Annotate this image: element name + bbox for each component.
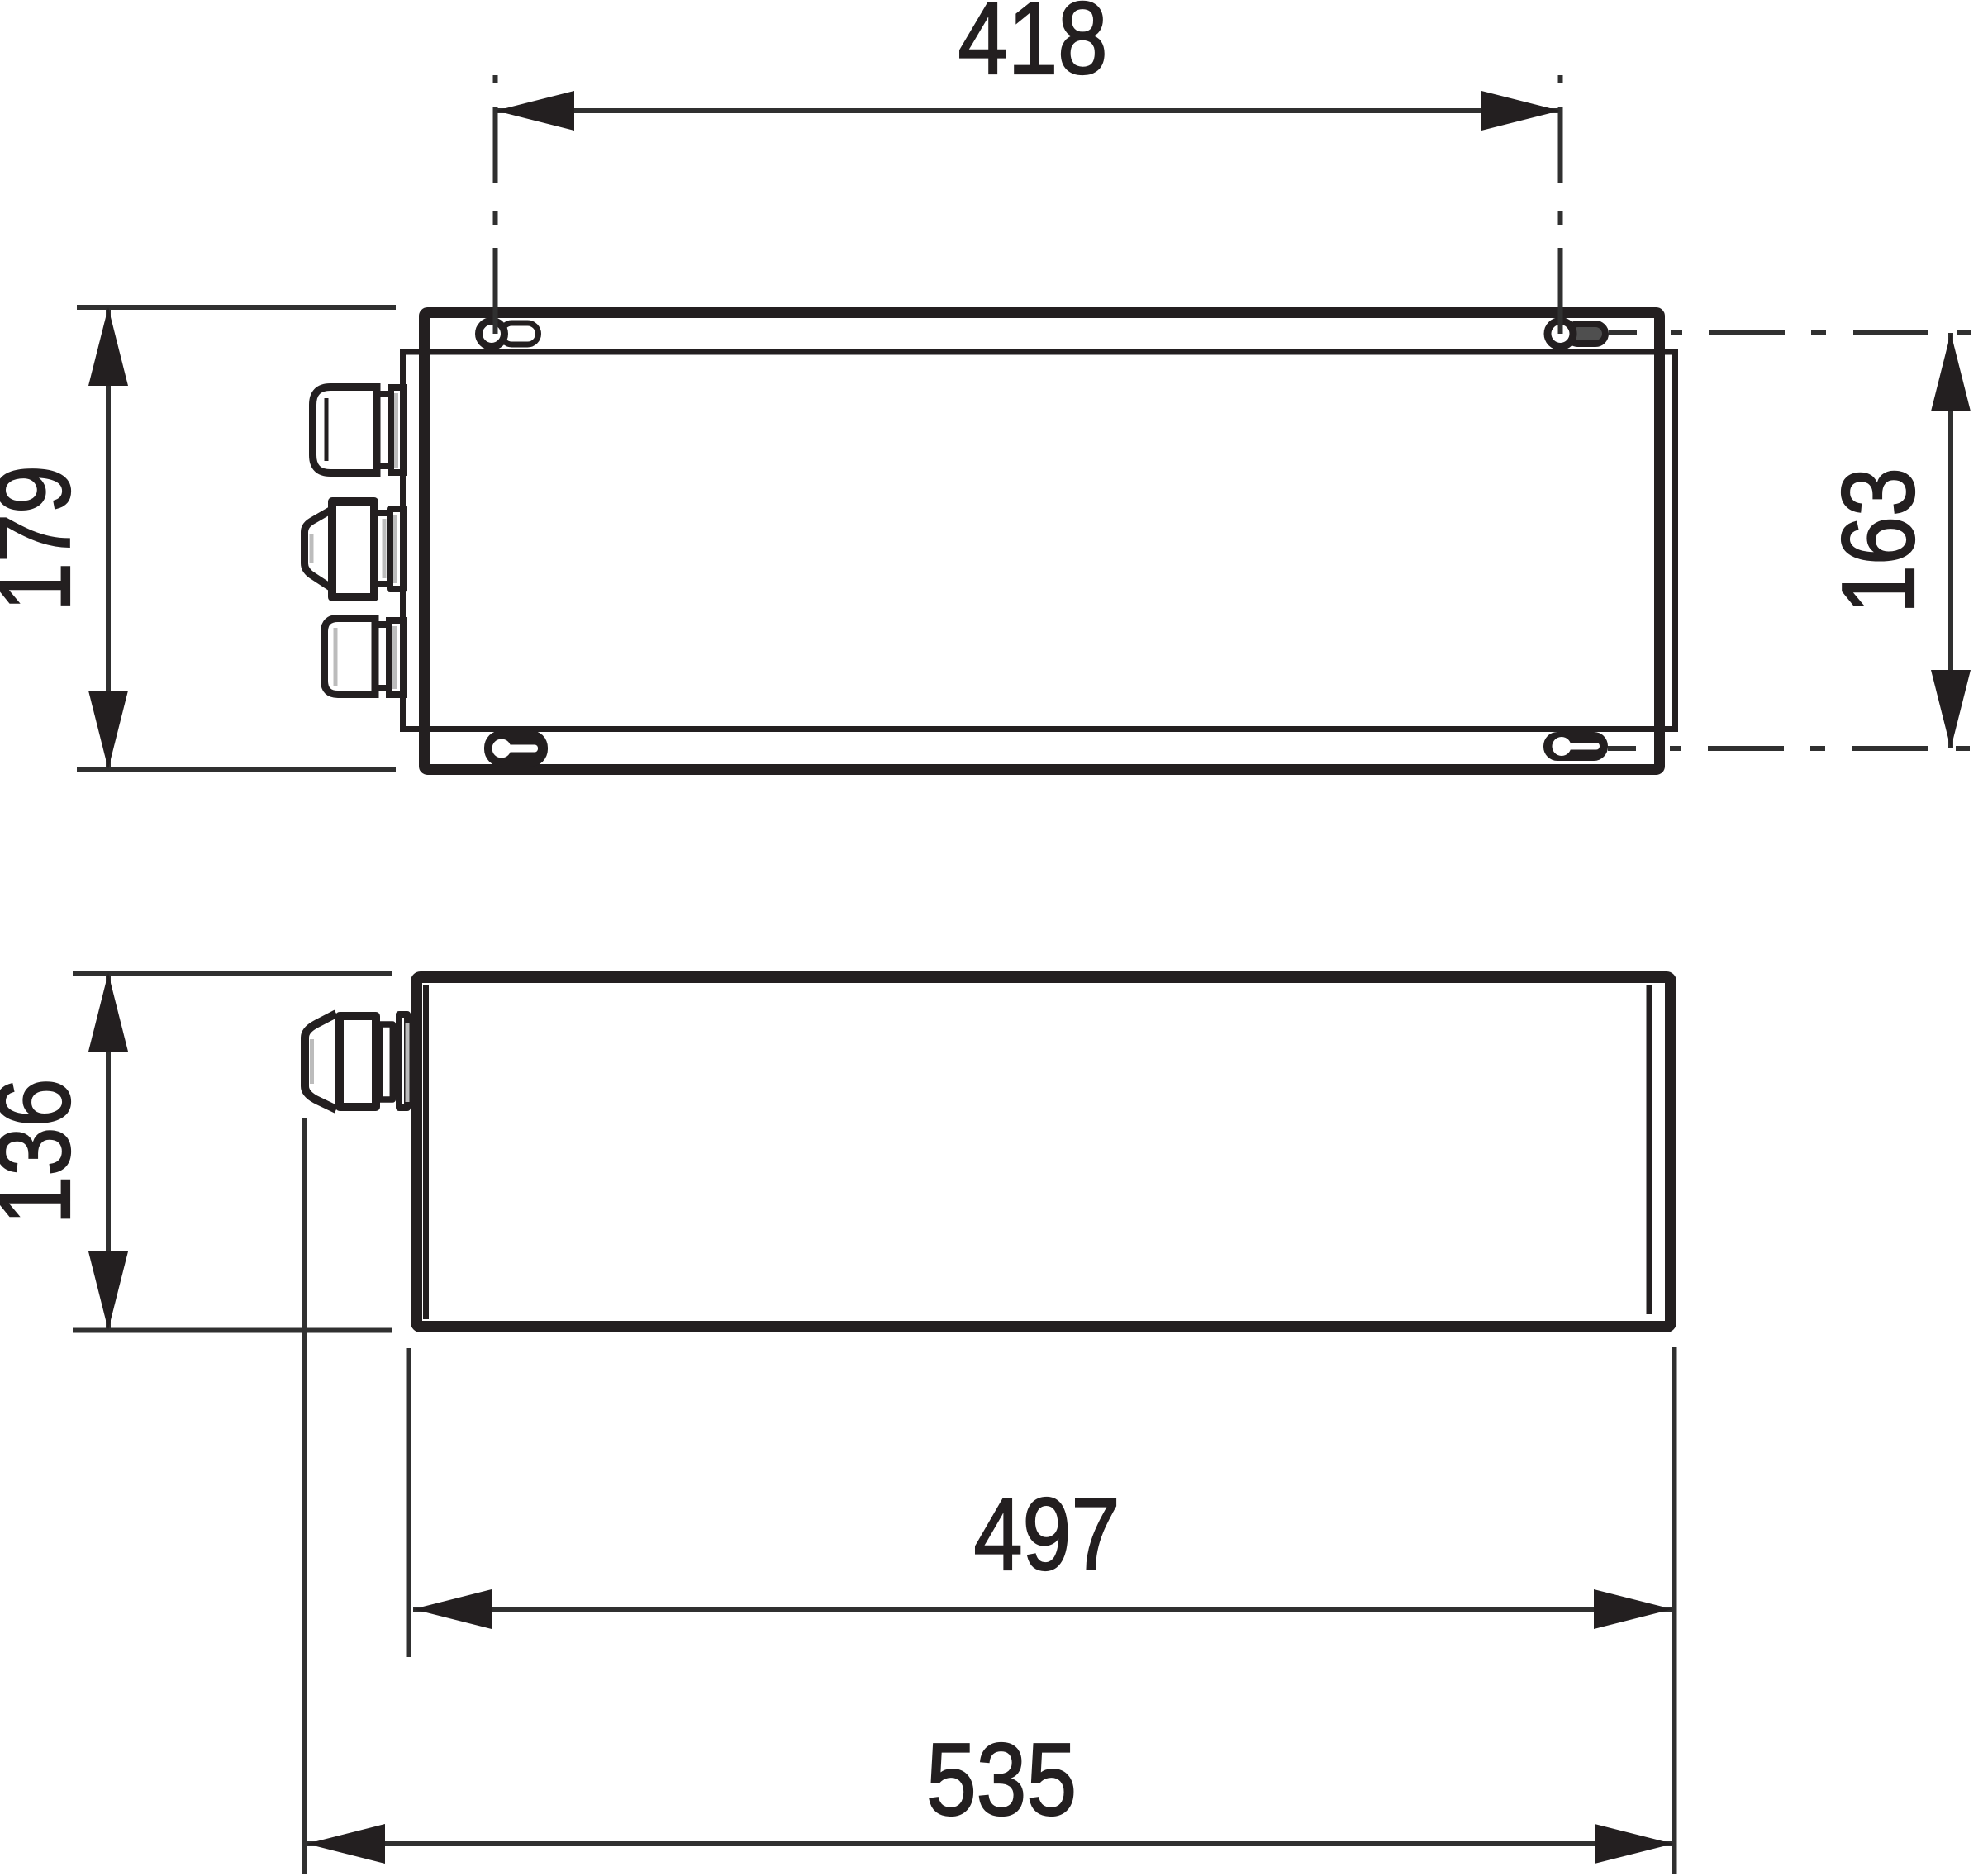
svg-text:179: 179 (0, 465, 92, 611)
svg-text:418: 418 (958, 0, 1108, 96)
svg-text:136: 136 (0, 1079, 92, 1225)
svg-text:163: 163 (1822, 468, 1936, 614)
svg-text:535: 535 (926, 1723, 1077, 1837)
svg-text:497: 497 (974, 1478, 1120, 1592)
